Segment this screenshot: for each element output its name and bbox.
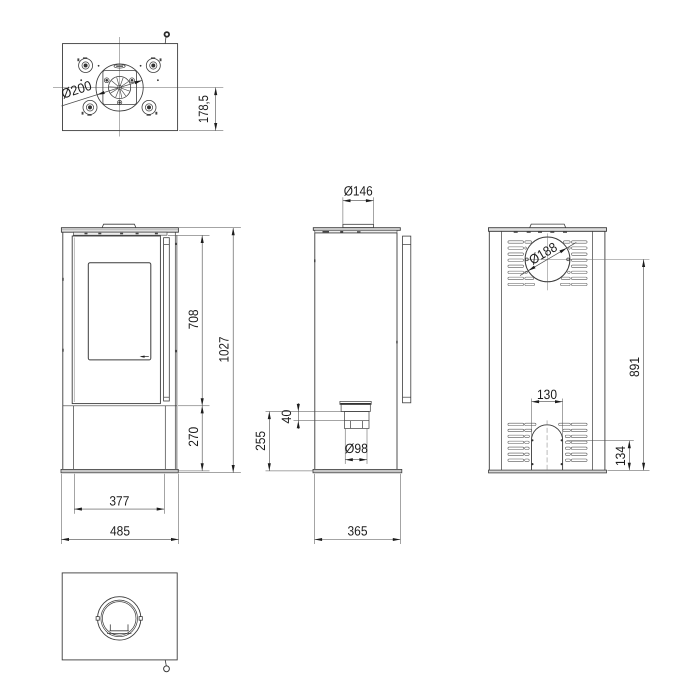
svg-text:134: 134	[613, 446, 628, 466]
svg-text:130: 130	[537, 387, 557, 402]
svg-text:Ø98: Ø98	[345, 441, 368, 456]
svg-text:708: 708	[186, 309, 201, 329]
svg-text:178,5: 178,5	[196, 95, 211, 123]
svg-text:377: 377	[109, 493, 129, 508]
svg-text:1027: 1027	[217, 337, 232, 363]
svg-text:270: 270	[186, 427, 201, 447]
svg-text:485: 485	[110, 524, 130, 539]
svg-text:Ø200: Ø200	[59, 78, 93, 102]
svg-text:891: 891	[627, 357, 642, 377]
svg-text:365: 365	[348, 524, 368, 539]
svg-text:Ø146: Ø146	[344, 184, 373, 199]
svg-text:255: 255	[253, 431, 268, 451]
